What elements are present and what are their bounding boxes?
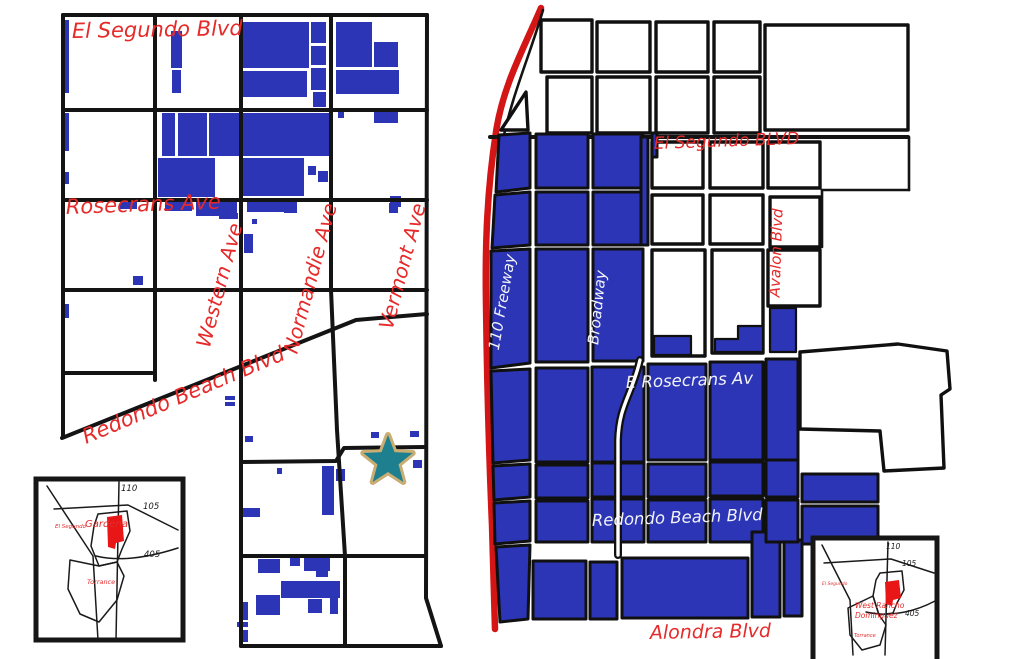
label-western-ave: Western Ave — [191, 220, 247, 350]
label-el-segundo-blvd-left: El Segundo Blvd — [72, 16, 244, 43]
label-redondo-beach-blvd-left: Redondo Beach Blvd — [79, 341, 289, 448]
label-alondra-blvd: Alondra Blvd — [648, 620, 772, 644]
right-inset-torrance-label: Torrance — [854, 633, 876, 639]
label-avalon-blvd: Avalon Blvd — [765, 208, 786, 299]
left-inset-city-label: Gardena — [85, 519, 128, 530]
left-inset-torrance-label: Torrance — [87, 578, 115, 586]
label-vermont-ave: Vermont Ave — [374, 201, 431, 332]
left-inset-el-segundo-label: El Segundo — [55, 524, 87, 530]
maps-svg: El Segundo Blvd Rosecrans Ave Western Av… — [0, 0, 1024, 659]
right-inset-110-label: 110 — [886, 542, 901, 551]
right-map: El Segundo BLVD 110 Freeway Broadway Ava… — [485, 8, 950, 659]
left-inset-map: 110 105 405 Gardena El Segundo Torrance — [36, 479, 183, 640]
left-inset-405-label: 405 — [144, 550, 160, 560]
left-inset-110-label: 110 — [121, 484, 137, 494]
right-inset-105-label: 105 — [902, 559, 917, 568]
right-inset-el-segundo-label: El Segundo — [822, 581, 848, 587]
hand-drawn-maps-canvas: El Segundo Blvd Rosecrans Ave Western Av… — [0, 0, 1024, 659]
left-map: El Segundo Blvd Rosecrans Ave Western Av… — [36, 15, 441, 646]
right-inset-city-label-line2: Dominguez — [855, 611, 899, 620]
location-star-marker — [363, 435, 412, 482]
right-inset-405-label: 405 — [905, 609, 920, 618]
right-inset-city-label-line1: West Rancho — [855, 601, 905, 610]
left-inset-105-label: 105 — [143, 502, 159, 512]
right-inset-map: 110 105 405 West Rancho Dominguez El Seg… — [813, 538, 937, 659]
